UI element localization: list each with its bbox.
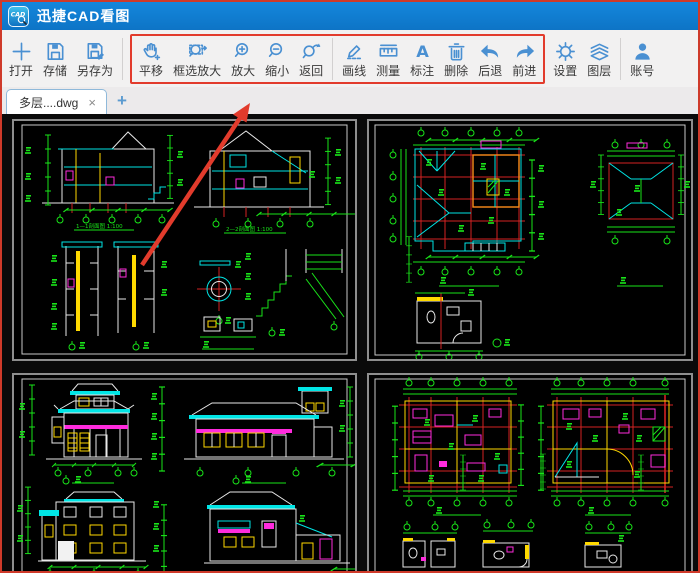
zoom-out-label: 缩小 [265, 64, 289, 78]
save-as-label: 另存为 [77, 64, 113, 78]
pan-label: 平移 [139, 64, 163, 78]
app-logo-icon: CAD [8, 6, 29, 27]
settings-button[interactable]: 设置 [548, 39, 582, 79]
delete-label: 删除 [444, 64, 468, 78]
settings-label: 设置 [553, 64, 577, 78]
annotate-button[interactable]: A 标注 [405, 39, 439, 79]
tab-label: 多层....dwg [19, 94, 78, 111]
tab-close-icon[interactable]: × [86, 96, 98, 109]
zoom-in-icon [232, 40, 255, 63]
user-icon [631, 40, 654, 63]
layers-icon [588, 40, 611, 63]
elevations-drawing [14, 375, 355, 571]
open-button[interactable]: 打开 [4, 39, 38, 79]
draw-line-label: 画线 [342, 64, 366, 78]
sheet-top-right[interactable] [367, 119, 693, 361]
save-as-icon [84, 40, 107, 63]
svg-text:CAD: CAD [11, 11, 25, 18]
title-bar: CAD 迅捷CAD看图 [2, 2, 698, 30]
ruler-icon [377, 40, 400, 63]
zoom-in-label: 放大 [231, 64, 255, 78]
marquee-zoom-label: 框选放大 [173, 64, 221, 78]
marquee-zoom-button[interactable]: 框选放大 [168, 39, 226, 79]
svg-text:2—2剖面图 1:100: 2—2剖面图 1:100 [226, 225, 273, 233]
floorplans-drawing [369, 375, 691, 571]
zoom-back-label: 返回 [299, 64, 323, 78]
pan-button[interactable]: 平移 [134, 39, 168, 79]
new-tab-button[interactable]: + [107, 91, 137, 114]
undo-label: 后退 [478, 64, 502, 78]
redo-label: 前进 [512, 64, 536, 78]
save-label: 存储 [43, 64, 67, 78]
forward-arrow-icon [513, 40, 536, 63]
highlighted-toolbar-group: 平移 框选放大 放大 [130, 34, 545, 84]
text-annotate-icon: A [411, 40, 434, 63]
account-label: 账号 [630, 64, 654, 78]
toolbar-separator [122, 38, 123, 80]
pencil-icon [343, 40, 366, 63]
main-toolbar: 打开 存储 另存为 [2, 30, 698, 87]
plans-drawing [369, 121, 691, 359]
back-arrow-icon [479, 40, 502, 63]
sheet-bottom-right[interactable] [367, 373, 693, 571]
layers-button[interactable]: 图层 [582, 39, 616, 79]
toolbar-separator [620, 38, 621, 80]
delete-button[interactable]: 删除 [439, 39, 473, 79]
zoom-in-button[interactable]: 放大 [226, 39, 260, 79]
sheet-bottom-left[interactable] [12, 373, 357, 571]
open-label: 打开 [9, 64, 33, 78]
measure-label: 测量 [376, 64, 400, 78]
undo-button[interactable]: 后退 [473, 39, 507, 79]
trash-icon [445, 40, 468, 63]
drawing-canvas[interactable]: 1—1剖面图 1:100 2—2剖面图 1:100 [2, 114, 698, 571]
document-tab[interactable]: 多层....dwg × [6, 89, 107, 114]
save-button[interactable]: 存储 [38, 39, 72, 79]
measure-button[interactable]: 测量 [371, 39, 405, 79]
save-icon [44, 40, 67, 63]
svg-text:A: A [416, 42, 429, 61]
sheet-top-left[interactable]: 1—1剖面图 1:100 2—2剖面图 1:100 [12, 119, 357, 361]
svg-text:1—1剖面图 1:100: 1—1剖面图 1:100 [76, 222, 123, 230]
account-button[interactable]: 账号 [625, 39, 659, 79]
tab-bar: 多层....dwg × + [2, 87, 698, 114]
layers-label: 图层 [587, 64, 611, 78]
plus-open-icon [10, 40, 33, 63]
save-as-button[interactable]: 另存为 [72, 39, 118, 79]
zoom-back-icon [300, 40, 323, 63]
window-title: 迅捷CAD看图 [37, 6, 130, 26]
zoom-back-button[interactable]: 返回 [294, 39, 328, 79]
draw-line-button[interactable]: 画线 [337, 39, 371, 79]
redo-button[interactable]: 前进 [507, 39, 541, 79]
sections-drawing: 1—1剖面图 1:100 2—2剖面图 1:100 [14, 121, 355, 359]
hand-pan-icon [140, 40, 163, 63]
zoom-out-icon [266, 40, 289, 63]
gear-icon [554, 40, 577, 63]
app-window: CAD 迅捷CAD看图 打开 存储 [0, 0, 700, 573]
marquee-zoom-icon [186, 40, 209, 63]
toolbar-separator [332, 38, 333, 80]
zoom-out-button[interactable]: 缩小 [260, 39, 294, 79]
annotate-label: 标注 [410, 64, 434, 78]
